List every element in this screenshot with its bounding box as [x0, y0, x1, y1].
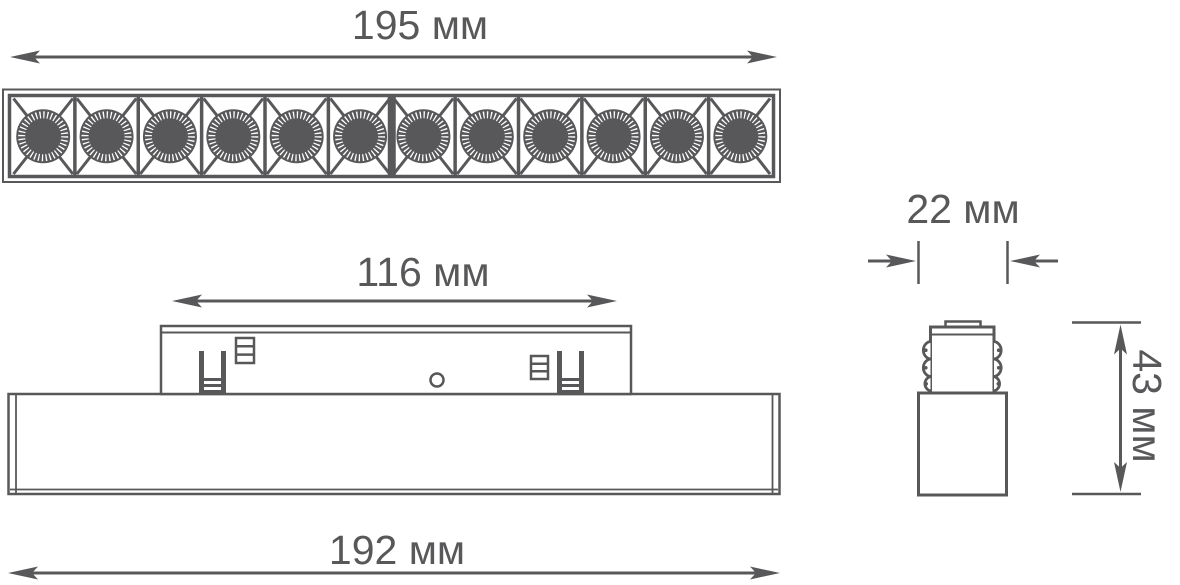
side-adapter: [931, 327, 995, 393]
dim-adapter-length: 116 мм: [172, 249, 617, 308]
dim-body-length: 192 мм: [8, 527, 780, 580]
top-view: [3, 90, 780, 183]
led-reflector: [650, 109, 704, 163]
dim-height: 43 мм: [1072, 323, 1170, 495]
technical-drawing: 195 мм 116 мм: [0, 0, 1180, 585]
side-spring-bumps-right: [994, 342, 1001, 392]
front-view: [9, 326, 780, 494]
led-reflector: [587, 109, 641, 163]
led-cell-array: [14, 97, 771, 175]
dim-top-length: 195 мм: [10, 2, 777, 64]
dim-adapter-length-label: 116 мм: [356, 249, 489, 295]
front-contact-left: [236, 338, 254, 363]
front-contact-right: [531, 356, 548, 379]
side-body: [919, 393, 1007, 495]
dim-top-length-label: 195 мм: [352, 2, 488, 48]
dim-body-width-label: 22 мм: [906, 186, 1019, 232]
dim-body-length-label: 192 мм: [329, 527, 465, 573]
front-body: [9, 394, 780, 494]
front-center-hole: [431, 374, 444, 387]
dim-body-width: 22 мм: [868, 186, 1058, 284]
drawing-canvas: 195 мм 116 мм: [0, 0, 1180, 585]
side-view: [919, 322, 1007, 496]
side-spring-bumps-left: [923, 342, 930, 392]
led-reflector: [206, 109, 260, 163]
dim-height-label: 43 мм: [1124, 349, 1170, 462]
led-reflector: [333, 109, 387, 163]
